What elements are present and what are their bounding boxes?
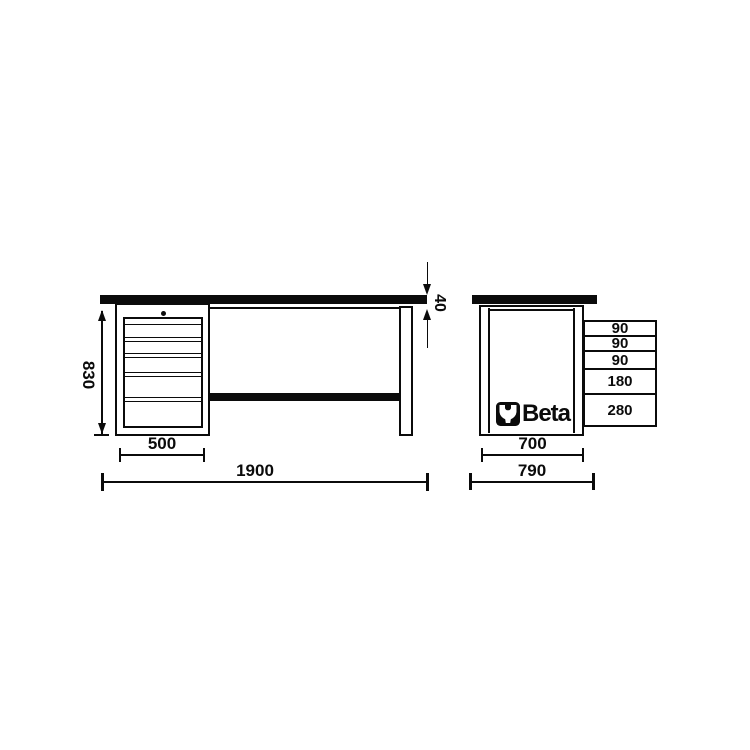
drawer-height-label: 90 xyxy=(612,352,629,369)
front-apron-line xyxy=(205,307,413,309)
dim-line-1900 xyxy=(102,481,428,483)
dim-line-500 xyxy=(120,454,205,456)
dim-tick xyxy=(592,473,595,490)
beta-wrench-icon xyxy=(496,402,520,426)
brand-wordmark: Beta xyxy=(522,401,570,427)
front-drawer-divider xyxy=(125,324,201,326)
dim-line-790 xyxy=(470,481,594,483)
front-drawer-divider xyxy=(125,372,201,377)
side-inner-wall-left xyxy=(488,308,490,433)
arrow-up-icon xyxy=(98,310,106,321)
dim-tick xyxy=(119,448,121,462)
lock-icon xyxy=(161,311,166,316)
dim-tick xyxy=(481,448,483,462)
dim-tick xyxy=(469,473,472,490)
dim-label-700: 700 xyxy=(482,435,583,453)
workbench-technical-drawing: 830 40 500 1900 Beta 90 90 90 1 xyxy=(0,0,750,750)
front-drawer-divider xyxy=(125,337,201,342)
dim-line-700 xyxy=(482,454,583,456)
dim-label-830: 830 xyxy=(79,355,97,395)
side-drawer-stack: 90 90 90 180 280 xyxy=(583,320,657,427)
dim-label-40: 40 xyxy=(432,289,448,317)
drawer-row: 90 xyxy=(583,350,657,370)
side-worktop xyxy=(472,295,597,304)
dim-tick xyxy=(582,448,584,462)
side-inner-wall-right xyxy=(573,308,575,433)
front-right-leg xyxy=(399,306,413,436)
dim-tick xyxy=(426,473,429,491)
dim-tick xyxy=(203,448,205,462)
dim-label-790: 790 xyxy=(470,462,594,480)
front-stretcher-bar xyxy=(208,393,401,401)
dim-line-830 xyxy=(101,311,103,434)
dim-tick-830 xyxy=(94,434,109,436)
drawer-row: 280 xyxy=(583,393,657,427)
drawer-height-label: 90 xyxy=(612,335,629,352)
dim-line-40-lower xyxy=(427,319,429,348)
front-drawer-divider xyxy=(125,353,201,358)
arrow-down-icon xyxy=(98,423,106,434)
dim-line-40-upper xyxy=(427,262,429,285)
drawer-height-label: 180 xyxy=(607,373,632,390)
dim-label-1900: 1900 xyxy=(175,462,335,480)
arrow-down-icon xyxy=(423,284,431,295)
front-drawer-divider xyxy=(125,397,201,402)
side-inner-top-line xyxy=(488,309,574,311)
dim-tick xyxy=(101,473,104,491)
drawer-height-label: 280 xyxy=(607,402,632,419)
drawer-row: 180 xyxy=(583,368,657,395)
dim-label-500: 500 xyxy=(122,435,202,453)
